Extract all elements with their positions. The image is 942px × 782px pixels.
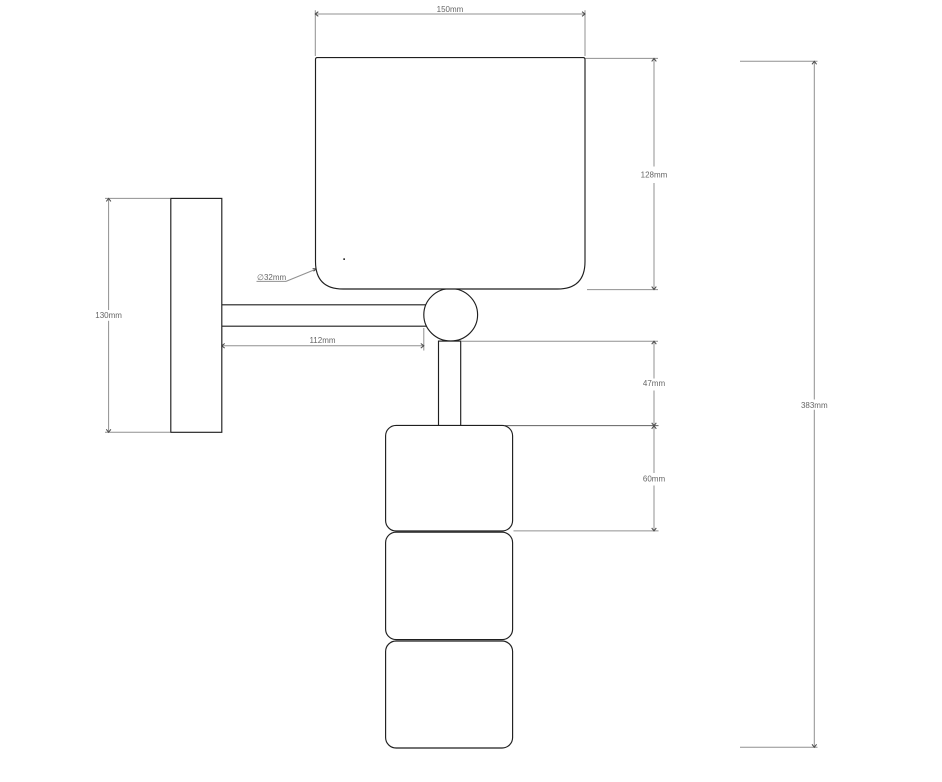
svg-text:47mm: 47mm <box>643 379 666 388</box>
svg-text:60mm: 60mm <box>643 474 666 483</box>
svg-text:128mm: 128mm <box>641 170 668 179</box>
svg-text:150mm: 150mm <box>437 5 464 14</box>
svg-text:112mm: 112mm <box>309 336 335 345</box>
svg-text:130mm: 130mm <box>95 311 122 320</box>
svg-text:∅32mm: ∅32mm <box>257 273 287 282</box>
svg-text:383mm: 383mm <box>801 401 828 410</box>
